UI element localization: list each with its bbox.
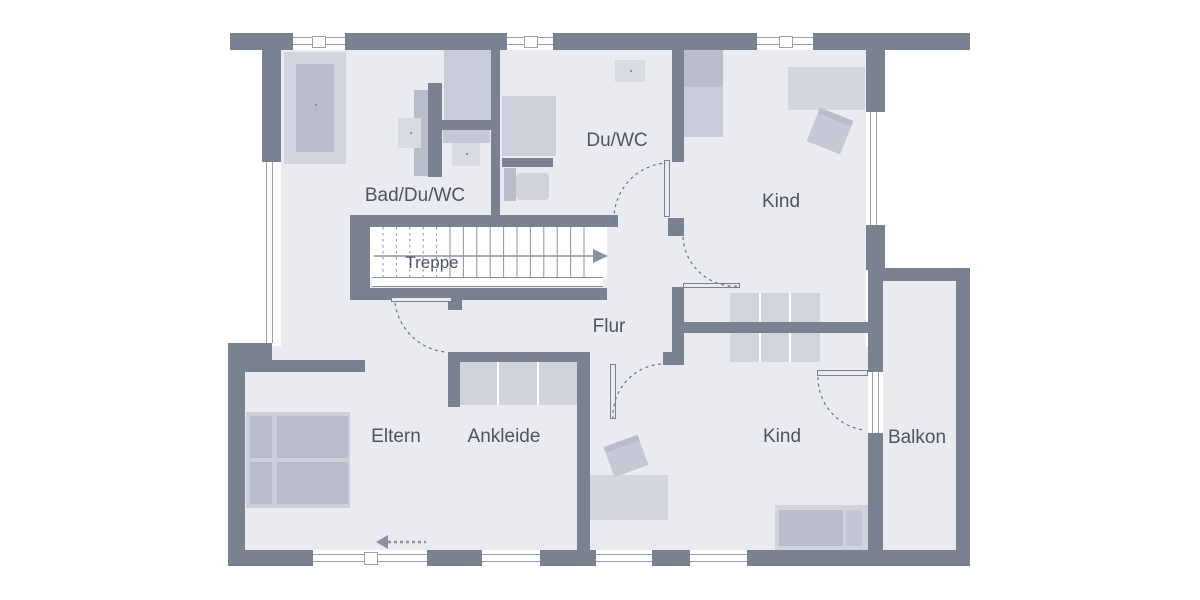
room-label-duwc: Du/WC [586,130,647,152]
plan-graphics [0,0,1200,600]
room-label-treppe: Treppe [405,253,458,273]
room-label-kind-bottom: Kind [763,426,801,448]
door-swing-arc [613,364,661,418]
door-swing-arc [614,163,666,220]
room-label-flur: Flur [593,316,626,338]
door-swing-arc [818,377,864,430]
room-label-eltern: Eltern [371,426,421,448]
room-label-bad: Bad/Du/WC [365,185,465,207]
door-swing-arc [395,303,445,352]
door-swing-arc [683,237,740,286]
room-label-balkon: Balkon [888,427,946,449]
floor-plan: Bad/Du/WC Treppe Du/WC Kind Flur Eltern … [0,0,1200,600]
room-label-kind-top: Kind [762,191,800,213]
entrance-direction-arrow [376,535,388,549]
stair-direction-arrow [593,249,608,263]
room-label-ankleide: Ankleide [468,426,541,448]
